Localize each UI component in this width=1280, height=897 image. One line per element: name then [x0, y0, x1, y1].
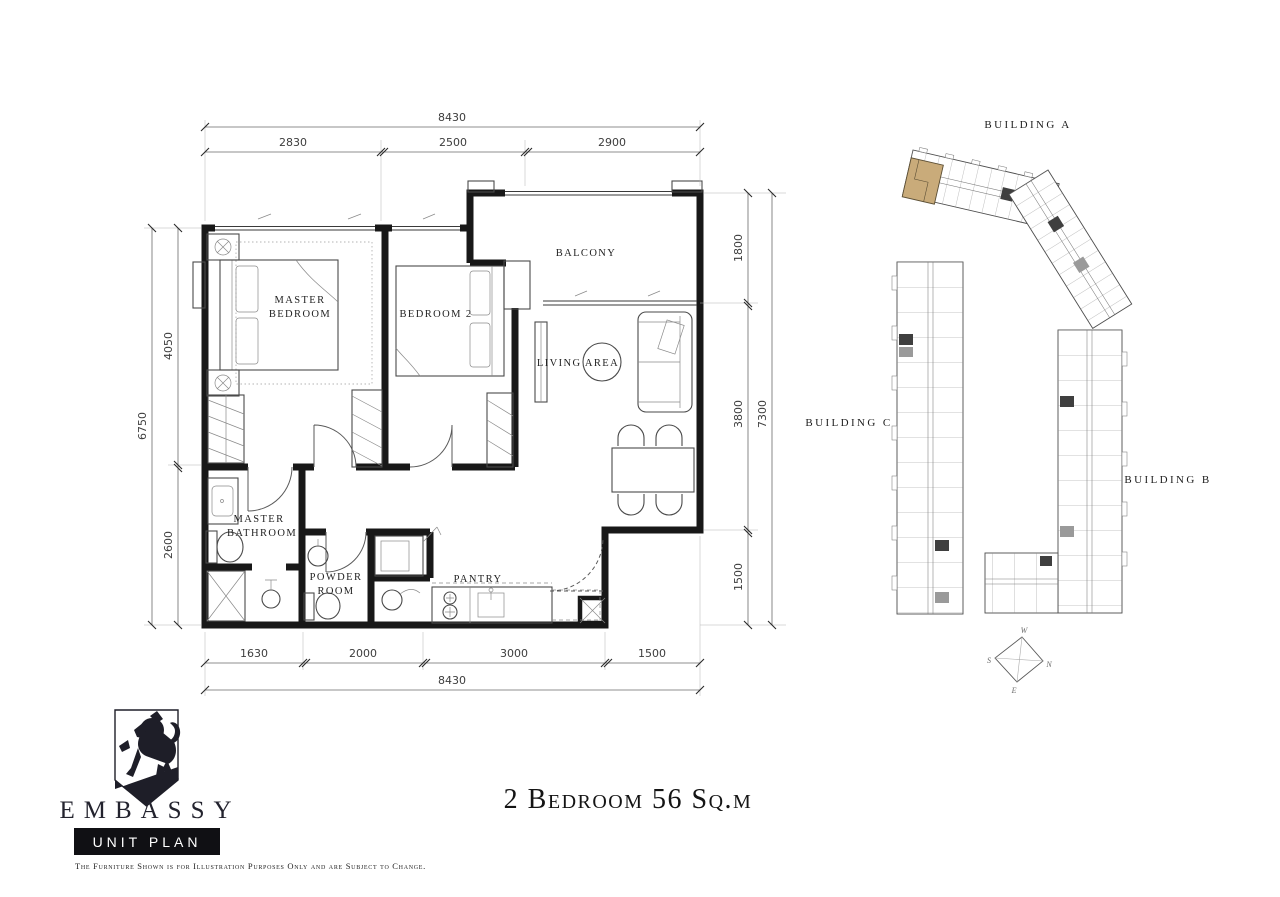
unit-plan-sheet: MASTER BEDROOM BEDROOM 2 BALCONY LIVING …	[0, 0, 1280, 897]
sofa	[638, 312, 692, 412]
compass-s: S	[987, 656, 991, 665]
master-bedroom-furniture	[207, 234, 382, 467]
entry-door	[550, 538, 603, 591]
floorplan-walls	[205, 193, 700, 625]
brand-logo	[115, 710, 180, 806]
dim-bottom-2: 2000	[349, 647, 377, 660]
dim-right-2: 3800	[732, 400, 745, 428]
label-building-c: BUILDING C	[805, 417, 892, 429]
label-master-bathroom2: BATHROOM	[227, 528, 297, 539]
disclaimer: The Furniture Shown is for Illustration …	[75, 861, 426, 871]
mop-basin	[382, 590, 402, 610]
dim-right-1: 1800	[732, 234, 745, 262]
dim-bottom-1: 1630	[240, 647, 268, 660]
label-living: LIVING AREA	[537, 358, 619, 369]
label-balcony: BALCONY	[556, 248, 617, 259]
dim-left-total: 6750	[136, 412, 149, 440]
label-building-a: BUILDING A	[984, 119, 1071, 131]
compass-n: N	[1045, 660, 1052, 669]
brand-name: EMBASSY	[59, 797, 240, 824]
unit-plan-badge-label: UNIT PLAN	[93, 834, 202, 850]
dim-left-1: 4050	[162, 332, 175, 360]
dining-set	[612, 425, 694, 515]
label-master-bedroom: MASTER	[275, 295, 326, 306]
dim-bottom-4: 1500	[638, 647, 666, 660]
dim-bottom: 1630 2000 3000 1500 8430	[201, 536, 704, 696]
drain	[262, 590, 280, 608]
compass-w: W	[1021, 626, 1029, 635]
dim-bottom-3: 3000	[500, 647, 528, 660]
building-b	[985, 330, 1127, 613]
dim-top-2: 2500	[439, 136, 467, 149]
dim-top-1: 2830	[279, 136, 307, 149]
label-master-bathroom: MASTER	[234, 514, 285, 525]
floorplan-windows	[193, 181, 702, 309]
label-building-b: BUILDING B	[1124, 474, 1211, 486]
compass-e: E	[1011, 686, 1017, 695]
dim-top-total: 8430	[438, 111, 466, 124]
floorplan: MASTER BEDROOM BEDROOM 2 BALCONY LIVING …	[136, 111, 786, 696]
dim-right-total: 7300	[756, 400, 769, 428]
bed2	[396, 266, 504, 376]
dim-right: 1800 3800 1500 7300	[700, 189, 786, 629]
dim-right-3: 1500	[732, 563, 745, 591]
brand-block: EMBASSY UNIT PLAN The Furniture Shown is…	[59, 710, 426, 871]
label-master-bedroom2: BEDROOM	[269, 309, 331, 320]
bedroom2-furniture	[396, 266, 513, 467]
wardrobe	[352, 390, 382, 467]
washer	[375, 536, 423, 576]
label-powder2: ROOM	[317, 586, 354, 597]
dim-top: 8430 2830 2500 2900	[201, 111, 704, 221]
dim-left: 4050 2600 6750	[136, 224, 201, 629]
dim-left-2: 2600	[162, 531, 175, 559]
site-key-plan: BUILDING A BUILDING C BUILDING B	[805, 119, 1211, 695]
living-furniture	[535, 312, 694, 515]
dim-top-3: 2900	[598, 136, 626, 149]
master-bathroom-fixtures	[206, 478, 280, 621]
compass: W S N E	[987, 626, 1052, 695]
label-bedroom2: BEDROOM 2	[400, 309, 473, 320]
service-shaft	[580, 598, 605, 623]
sheet-title: 2 Bedroom 56 Sq.m	[504, 784, 753, 815]
building-c	[892, 262, 963, 614]
column	[504, 261, 530, 309]
dim-bottom-total: 8430	[438, 674, 466, 687]
wardrobe	[487, 393, 513, 467]
label-pantry: PANTRY	[454, 574, 503, 585]
label-powder: POWDER	[310, 572, 363, 583]
unit-plan-drawing: MASTER BEDROOM BEDROOM 2 BALCONY LIVING …	[0, 0, 1280, 897]
basin	[308, 546, 328, 566]
